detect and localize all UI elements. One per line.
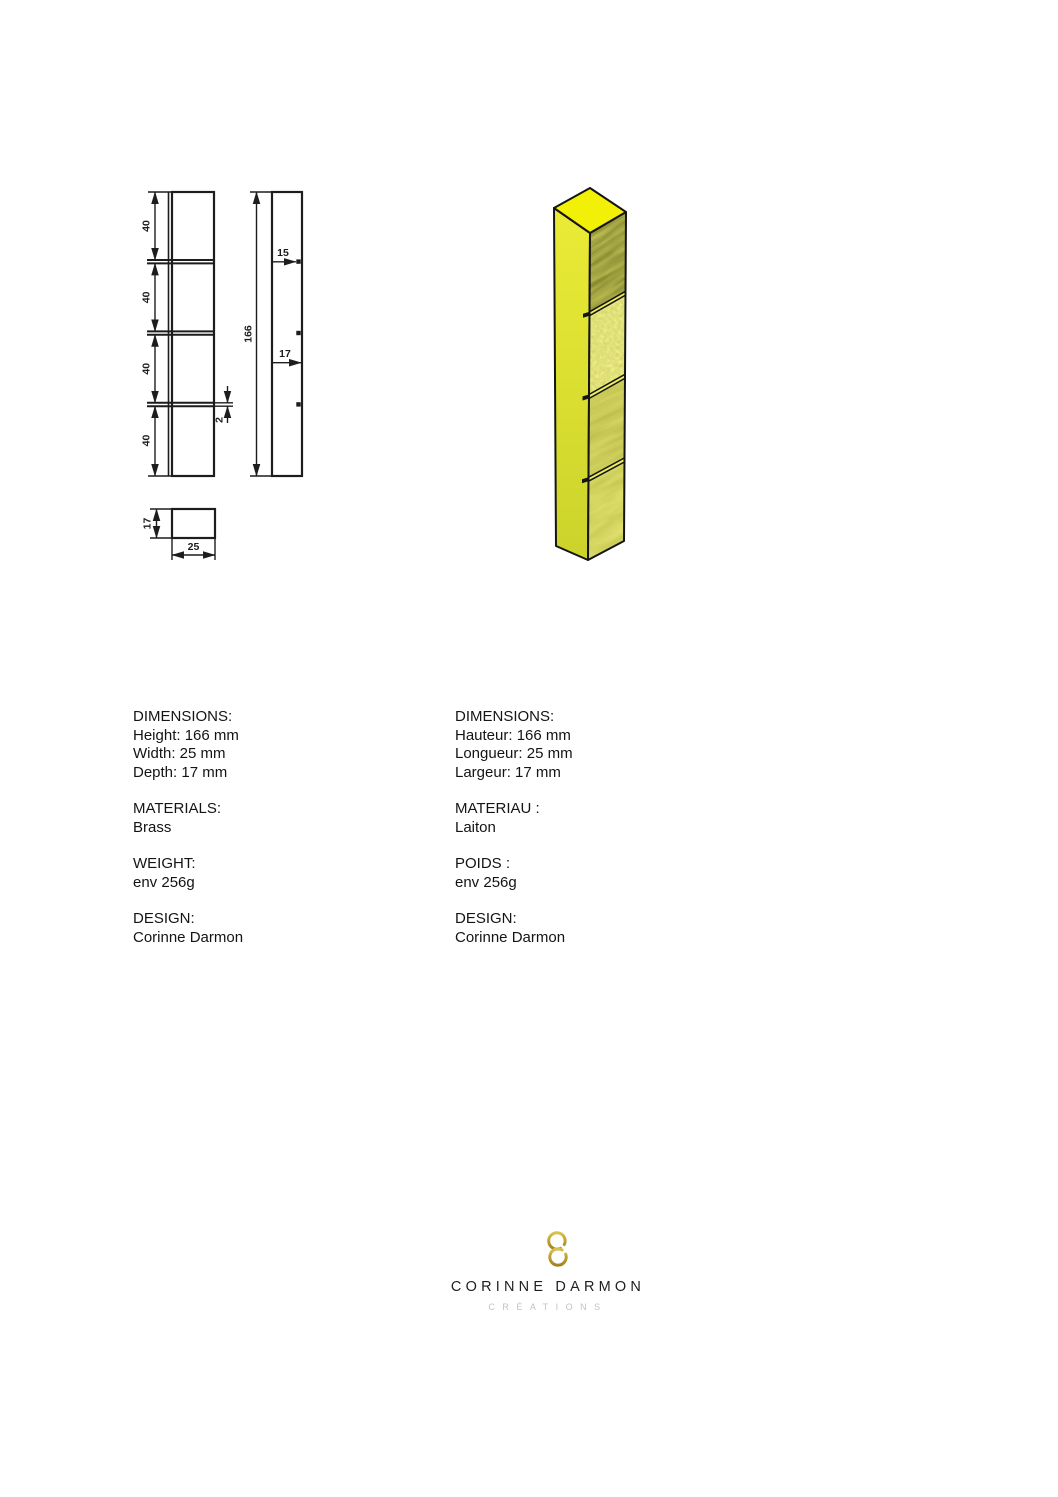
spec-block-weight-en: WEIGHT: env 256g [133, 855, 413, 892]
spec-heading: POIDS : [455, 855, 735, 874]
spec-block-design-fr: DESIGN: Corinne Darmon [455, 910, 735, 947]
spec-column-french: DIMENSIONS: Hauteur: 166 mm Longueur: 25… [455, 708, 735, 965]
side-view-notches [296, 259, 300, 406]
spec-heading: MATERIALS: [133, 800, 413, 819]
spec-line: Longueur: 25 mm [455, 745, 735, 764]
spec-line: Corinne Darmon [455, 929, 735, 948]
dim-label-17-side: 17 [279, 348, 291, 360]
front-view: 40 40 40 40 2 [141, 192, 234, 476]
dim-label-40-4: 40 [141, 435, 153, 447]
front-view-grooves [147, 260, 214, 406]
dim-label-40-2: 40 [141, 291, 153, 303]
spec-line: Laiton [455, 819, 735, 838]
spec-line: Largeur: 17 mm [455, 764, 735, 783]
spec-block-materials-fr: MATERIAU : Laiton [455, 800, 735, 837]
spec-line: Width: 25 mm [133, 745, 413, 764]
spec-line: Corinne Darmon [133, 929, 413, 948]
spec-line: Depth: 17 mm [133, 764, 413, 783]
brand-name: CORINNE DARMON [438, 1279, 658, 1295]
spec-block-weight-fr: POIDS : env 256g [455, 855, 735, 892]
brand-monogram-icon [535, 1222, 581, 1278]
spec-sheet-page: 40 40 40 40 2 16 [0, 0, 1058, 1497]
spec-line: Hauteur: 166 mm [455, 727, 735, 746]
spec-column-english: DIMENSIONS: Height: 166 mm Width: 25 mm … [133, 708, 413, 965]
spec-heading: WEIGHT: [133, 855, 413, 874]
spec-heading: DESIGN: [455, 910, 735, 929]
dim-label-40-1: 40 [141, 220, 153, 232]
technical-drawing-canvas: 40 40 40 40 2 16 [120, 170, 680, 580]
section-view-dimensions [150, 509, 215, 560]
spec-block-materials-en: MATERIALS: Brass [133, 800, 413, 837]
dim-label-40-3: 40 [141, 363, 153, 375]
dim-label-166: 166 [243, 325, 255, 343]
side-view: 166 15 17 [243, 192, 303, 476]
spec-heading: DIMENSIONS: [455, 708, 735, 727]
spec-line: env 256g [133, 874, 413, 893]
spec-heading: MATERIAU : [455, 800, 735, 819]
section-view-outline [172, 509, 215, 538]
side-view-dimensions [250, 192, 301, 476]
brand-tagline: CRÉATIONS [438, 1302, 658, 1312]
dim-label-17-section: 17 [142, 518, 154, 530]
product-render-3d [468, 170, 680, 580]
spec-line: Brass [133, 819, 413, 838]
spec-line: Height: 166 mm [133, 727, 413, 746]
dim-label-groove-2: 2 [214, 417, 226, 423]
section-view: 17 25 [142, 509, 216, 560]
spec-block-dimensions-fr: DIMENSIONS: Hauteur: 166 mm Longueur: 25… [455, 708, 735, 782]
spec-heading: DIMENSIONS: [133, 708, 413, 727]
dim-label-25: 25 [188, 541, 200, 553]
spec-heading: DESIGN: [133, 910, 413, 929]
spec-block-dimensions-en: DIMENSIONS: Height: 166 mm Width: 25 mm … [133, 708, 413, 782]
render-left-face [554, 208, 590, 560]
spec-line: env 256g [455, 874, 735, 893]
dim-label-15: 15 [277, 247, 289, 259]
spec-block-design-en: DESIGN: Corinne Darmon [133, 910, 413, 947]
